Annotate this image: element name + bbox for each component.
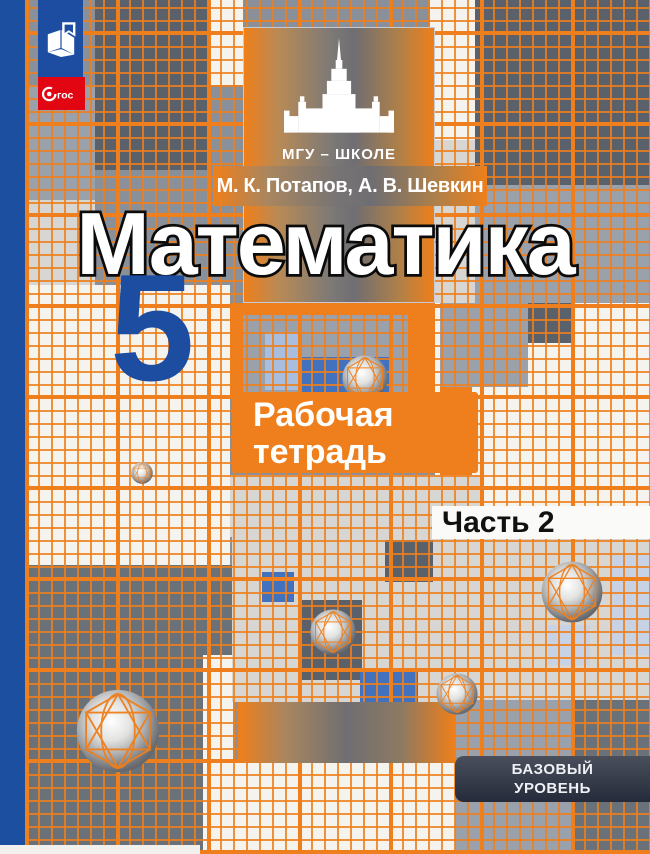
prosveshchenie-book-icon	[43, 11, 79, 67]
series-title: МГУ – ШКОЛЕ	[244, 146, 434, 163]
spine-stripe	[0, 0, 25, 845]
workbook-line2: тетрадь	[253, 434, 478, 471]
decor-sphere	[436, 673, 478, 715]
decor-sphere	[76, 689, 160, 773]
book-title: Математика	[0, 200, 650, 288]
fgos-badge: гос	[38, 77, 85, 110]
decor-sphere	[131, 462, 153, 484]
mgu-building-icon	[284, 38, 394, 143]
bottom-gradient-bar	[238, 702, 455, 763]
grade-number: 5	[110, 252, 195, 404]
fgos-c-icon	[43, 87, 55, 99]
spine-stripe-foot	[0, 845, 200, 854]
level-badge: БАЗОВЫЙ УРОВЕНЬ	[455, 756, 650, 802]
part-label: Часть 2	[432, 506, 650, 539]
book-cover: гос МГУ – ШКОЛЕ	[0, 0, 650, 854]
publisher-logo	[38, 0, 83, 77]
fgos-label: гос	[56, 89, 73, 101]
level-line2: УРОВЕНЬ	[455, 779, 650, 798]
decor-sphere	[541, 561, 603, 623]
workbook-line1: Рабочая	[253, 397, 478, 434]
workbook-label: Рабочая тетрадь	[232, 392, 478, 473]
level-line1: БАЗОВЫЙ	[455, 760, 650, 779]
decor-sphere	[310, 609, 356, 655]
